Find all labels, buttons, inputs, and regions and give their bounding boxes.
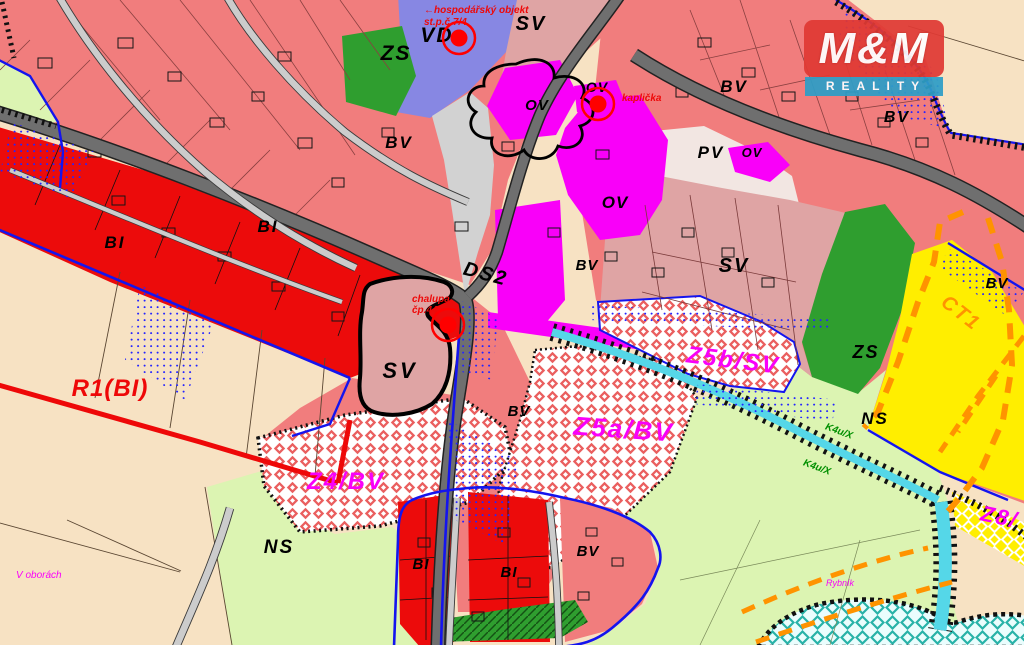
zone-label-zs-right: ZS (851, 342, 879, 362)
zone-label-sv-right: SV (719, 255, 750, 277)
zone-label-ov-3: OV (602, 193, 629, 212)
logo-reality-text: REALITY (805, 77, 943, 96)
mm-reality-logo: M&M REALITY (804, 20, 944, 96)
poi-marker-dot (451, 30, 468, 47)
zone-label-ns-right: NS (861, 409, 889, 428)
stream-vertical-channel (940, 502, 945, 630)
zoning-map: ZSVDSVBVBVBVPVOVOVOVOVDS2SVSVBVBVBVBVBIB… (0, 0, 1024, 645)
zone-label-pv: PV (698, 143, 725, 162)
annotation-chalupa-line1: chalupa (412, 294, 450, 305)
logo-mm-text: M&M (804, 20, 944, 77)
place-label-rybnik: Rybník (826, 578, 855, 588)
zone-label-ov-1: OV (525, 97, 550, 114)
zone-label-bv-center: BV (508, 403, 532, 420)
zone-label-bv-edge: BV (986, 275, 1010, 292)
zone-label-bv-left: BV (385, 133, 413, 152)
annotation-kaplicka: kaplička (622, 93, 662, 104)
zone-label-bv-right: BV (884, 109, 910, 126)
zone-label-bi-4: BI (501, 564, 518, 581)
zone-label-bi-3: BI (413, 556, 430, 573)
map-viewport[interactable]: ZSVDSVBVBVBVPVOVOVOVOVDS2SVSVBVBVBVBVBIB… (0, 0, 1024, 645)
zone-label-ov-4: OV (742, 145, 763, 160)
zone-label-bv-topright: BV (720, 77, 748, 96)
poi-marker-dot (440, 317, 457, 334)
place-label-v-oborach: V oborách (16, 570, 62, 581)
poi-marker-dot (590, 96, 607, 113)
zone-label-r1bi: R1(BI) (72, 375, 149, 402)
annotation-chalupa-line2: čp.44 (412, 305, 438, 316)
zone-label-bi-1: BI (105, 233, 126, 252)
zone-label-ns-left: NS (264, 537, 294, 558)
zone-label-bi-2: BI (258, 217, 279, 236)
zone-label-bv-mid: BV (576, 257, 600, 274)
zone-label-zs-top: ZS (380, 42, 412, 65)
zone-label-z4bv: Z4/BV (306, 468, 385, 495)
zone-label-sv-top: SV (516, 13, 547, 35)
zone-label-sv-center: SV (382, 358, 417, 383)
annotation-hospodarsky-line1: ←hospodářský objekt (424, 5, 529, 16)
zone-label-bv-bottom: BV (577, 543, 601, 560)
